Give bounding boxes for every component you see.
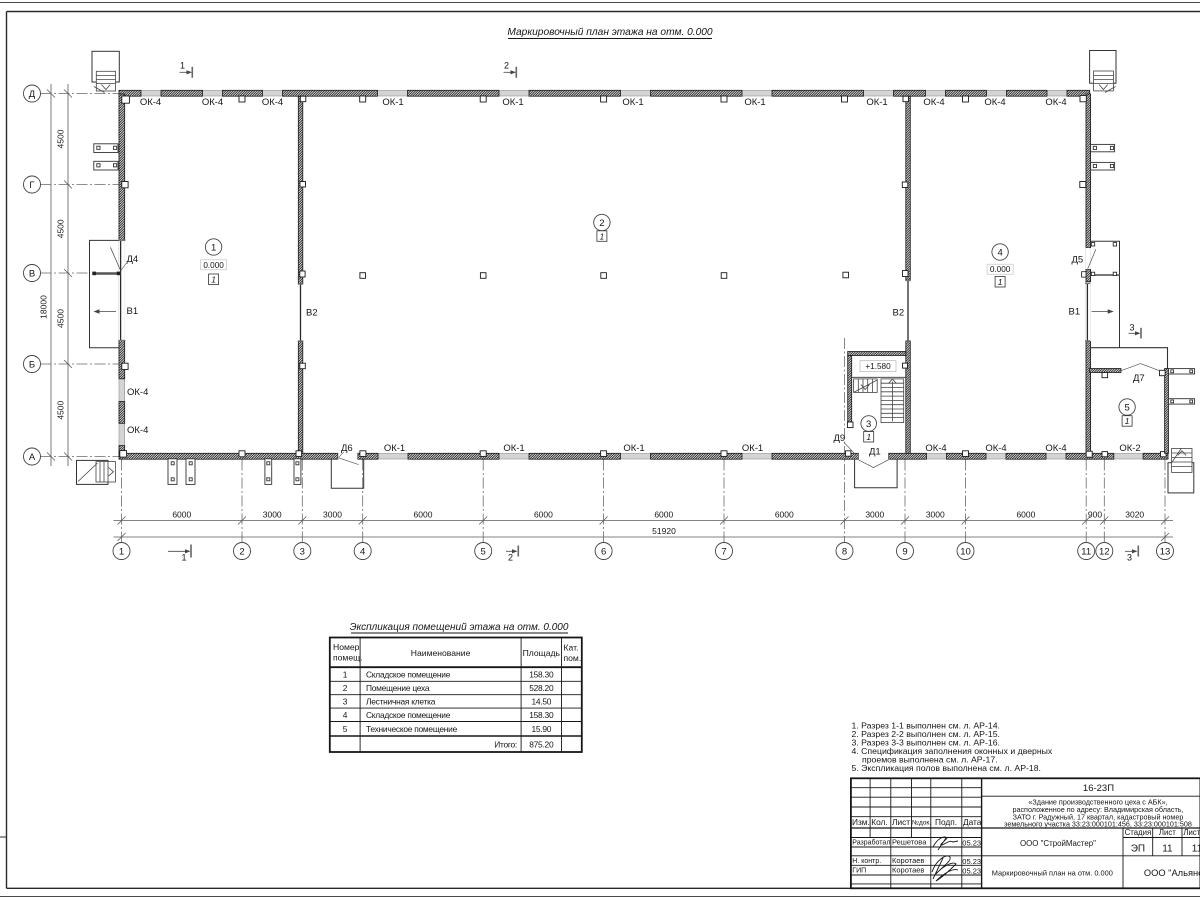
svg-text:4500: 4500 xyxy=(56,309,66,328)
svg-text:Техническое помещение: Техническое помещение xyxy=(366,724,458,734)
svg-text:ОК-1: ОК-1 xyxy=(384,443,405,454)
svg-text:3000: 3000 xyxy=(926,510,945,520)
svg-text:2: 2 xyxy=(504,61,509,71)
svg-text:4500: 4500 xyxy=(56,400,66,419)
svg-text:1: 1 xyxy=(600,231,605,241)
svg-text:13: 13 xyxy=(1160,547,1171,558)
svg-text:12: 12 xyxy=(1099,547,1110,558)
svg-text:ОК-1: ОК-1 xyxy=(744,97,765,108)
svg-text:4500: 4500 xyxy=(56,219,66,238)
svg-text:1: 1 xyxy=(211,275,216,285)
svg-text:Подп.: Подп. xyxy=(935,817,957,827)
svg-text:Разработал: Разработал xyxy=(852,839,890,847)
svg-text:ОК-4: ОК-4 xyxy=(925,443,946,454)
svg-text:Складское помещение: Складское помещение xyxy=(366,710,451,720)
svg-text:Складское помещение: Складское помещение xyxy=(366,670,451,680)
svg-text:6: 6 xyxy=(601,547,606,558)
svg-text:6000: 6000 xyxy=(534,510,553,520)
svg-text:1: 1 xyxy=(343,670,348,680)
svg-text:6000: 6000 xyxy=(172,510,191,520)
svg-text:3: 3 xyxy=(1127,553,1132,563)
svg-text:3000: 3000 xyxy=(263,510,282,520)
svg-text:Д9: Д9 xyxy=(834,433,846,444)
svg-text:1: 1 xyxy=(180,61,185,71)
svg-text:ОК-1: ОК-1 xyxy=(503,443,524,454)
svg-text:8: 8 xyxy=(842,547,847,558)
svg-text:Итого:: Итого: xyxy=(494,740,517,750)
svg-text:ОК-4: ОК-4 xyxy=(202,97,223,108)
svg-text:51920: 51920 xyxy=(652,526,676,536)
svg-text:Наименование: Наименование xyxy=(411,648,471,658)
svg-text:ООО "Альянс": ООО "Альянс" xyxy=(1144,868,1200,878)
svg-text:А: А xyxy=(29,452,36,463)
svg-text:+1.580: +1.580 xyxy=(865,362,891,371)
svg-text:Лист: Лист xyxy=(1159,828,1176,837)
svg-text:5: 5 xyxy=(481,547,486,558)
svg-text:05.23: 05.23 xyxy=(962,839,981,848)
svg-text:6000: 6000 xyxy=(414,510,433,520)
svg-text:16-23П: 16-23П xyxy=(1083,783,1114,794)
svg-text:ОК-4: ОК-4 xyxy=(1045,97,1066,108)
svg-text:6000: 6000 xyxy=(775,510,794,520)
svg-text:14.50: 14.50 xyxy=(531,697,551,707)
svg-text:Д4: Д4 xyxy=(127,254,139,265)
svg-text:2: 2 xyxy=(239,547,244,558)
svg-text:ОК-1: ОК-1 xyxy=(382,97,403,108)
svg-text:15.90: 15.90 xyxy=(531,724,551,734)
svg-text:2: 2 xyxy=(343,683,348,693)
svg-text:10: 10 xyxy=(960,547,971,558)
svg-text:ОК-4: ОК-4 xyxy=(262,97,283,108)
svg-text:5. Экспликация полов выполнена: 5. Экспликация полов выполнена см. л. АР… xyxy=(852,763,1041,773)
svg-text:7: 7 xyxy=(721,547,726,558)
svg-text:Н. контр.: Н. контр. xyxy=(852,858,881,865)
svg-text:3: 3 xyxy=(343,697,348,707)
svg-text:5: 5 xyxy=(1124,403,1129,414)
svg-text:помещ.: помещ. xyxy=(333,653,363,663)
svg-text:В: В xyxy=(29,269,35,280)
svg-text:158.30: 158.30 xyxy=(529,670,554,680)
svg-text:В1: В1 xyxy=(127,306,139,317)
svg-text:ЭП: ЭП xyxy=(1131,844,1145,855)
svg-text:05.23: 05.23 xyxy=(962,867,981,876)
svg-text:№док.: №док. xyxy=(912,820,931,827)
svg-text:6000: 6000 xyxy=(1016,510,1035,520)
svg-text:ОК-1: ОК-1 xyxy=(742,443,763,454)
svg-text:Лист: Лист xyxy=(892,817,910,827)
svg-text:Коротаев: Коротаев xyxy=(892,866,924,875)
svg-text:0.000: 0.000 xyxy=(203,261,224,270)
svg-text:5: 5 xyxy=(343,724,348,734)
svg-text:4: 4 xyxy=(360,547,365,558)
svg-text:Маркировочный план на отм. 0.0: Маркировочный план на отм. 0.000 xyxy=(992,868,1113,877)
svg-text:В2: В2 xyxy=(306,308,318,319)
svg-text:Д7: Д7 xyxy=(1133,373,1145,384)
svg-text:1: 1 xyxy=(1125,416,1130,426)
svg-text:ОК-1: ОК-1 xyxy=(622,97,643,108)
svg-text:пом.: пом. xyxy=(564,653,582,663)
svg-text:Д: Д xyxy=(29,89,36,100)
svg-text:земельного участка 33:23:00010: земельного участка 33:23:000101:456, 33:… xyxy=(1004,819,1192,828)
svg-text:3: 3 xyxy=(300,547,305,558)
svg-text:1: 1 xyxy=(211,243,216,254)
svg-text:Маркировочный план этажа на от: Маркировочный план этажа на отм. 0.000 xyxy=(507,27,713,38)
svg-text:3020: 3020 xyxy=(1125,510,1144,520)
svg-text:158.30: 158.30 xyxy=(529,710,554,720)
svg-text:ОК-4: ОК-4 xyxy=(923,97,944,108)
svg-text:3000: 3000 xyxy=(323,510,342,520)
svg-text:Номер: Номер xyxy=(333,642,360,652)
svg-text:ОК-4: ОК-4 xyxy=(127,387,148,398)
svg-text:11: 11 xyxy=(1192,844,1200,855)
svg-text:528.20: 528.20 xyxy=(529,683,554,693)
svg-text:1: 1 xyxy=(119,547,124,558)
svg-text:ОК-2: ОК-2 xyxy=(1119,443,1140,454)
svg-text:ГИП: ГИП xyxy=(852,868,866,875)
svg-text:875.20: 875.20 xyxy=(529,740,554,750)
svg-text:Б: Б xyxy=(29,360,35,371)
svg-text:ОК-4: ОК-4 xyxy=(127,425,148,436)
svg-text:3: 3 xyxy=(1129,323,1134,333)
svg-text:4500: 4500 xyxy=(56,129,66,148)
svg-text:Д5: Д5 xyxy=(1072,255,1084,266)
svg-text:3000: 3000 xyxy=(865,510,884,520)
svg-text:Экспликация помещений этажа на: Экспликация помещений этажа на отм. 0.00… xyxy=(350,622,569,633)
svg-text:ОК-1: ОК-1 xyxy=(866,97,887,108)
svg-text:11: 11 xyxy=(1081,547,1091,558)
svg-text:Д1: Д1 xyxy=(869,447,881,458)
svg-text:2: 2 xyxy=(508,553,513,563)
svg-text:Площадь: Площадь xyxy=(523,648,561,658)
svg-text:Д6: Д6 xyxy=(341,443,353,454)
svg-text:1: 1 xyxy=(181,553,186,563)
svg-text:6000: 6000 xyxy=(654,510,673,520)
svg-text:В1: В1 xyxy=(1069,307,1081,318)
svg-text:В2: В2 xyxy=(893,308,905,319)
svg-text:0.000: 0.000 xyxy=(990,265,1011,274)
svg-text:ОК-4: ОК-4 xyxy=(1045,443,1066,454)
svg-text:4: 4 xyxy=(343,710,348,720)
svg-text:Дата: Дата xyxy=(963,817,982,827)
svg-text:9: 9 xyxy=(902,547,907,558)
svg-text:18000: 18000 xyxy=(39,295,49,319)
svg-text:11: 11 xyxy=(1162,844,1173,855)
svg-text:900: 900 xyxy=(1088,510,1102,520)
svg-text:ОК-4: ОК-4 xyxy=(984,97,1005,108)
svg-text:Кат.: Кат. xyxy=(564,643,579,653)
svg-text:2: 2 xyxy=(599,218,604,229)
svg-text:ОК-1: ОК-1 xyxy=(502,97,523,108)
svg-text:ОК-1: ОК-1 xyxy=(623,443,644,454)
svg-text:1: 1 xyxy=(866,432,871,442)
svg-text:Кол.: Кол. xyxy=(871,817,887,827)
svg-text:3: 3 xyxy=(866,419,871,430)
svg-text:Коротаев: Коротаев xyxy=(892,856,924,865)
svg-text:Решетова: Решетова xyxy=(892,838,927,847)
svg-text:Стадия: Стадия xyxy=(1125,828,1152,837)
svg-text:Помещение цеха: Помещение цеха xyxy=(366,683,430,693)
svg-text:Листов: Листов xyxy=(1183,828,1200,837)
svg-text:05.23: 05.23 xyxy=(962,857,981,866)
svg-text:ООО "СтройМастер": ООО "СтройМастер" xyxy=(1020,839,1096,848)
svg-text:ОК-4: ОК-4 xyxy=(985,443,1006,454)
svg-text:Изм.: Изм. xyxy=(852,817,870,827)
svg-text:1: 1 xyxy=(998,277,1003,287)
svg-text:Лестничная клетка: Лестничная клетка xyxy=(366,697,436,707)
svg-text:ОК-4: ОК-4 xyxy=(140,97,161,108)
svg-text:Г: Г xyxy=(29,180,34,191)
svg-text:4: 4 xyxy=(997,248,1002,259)
